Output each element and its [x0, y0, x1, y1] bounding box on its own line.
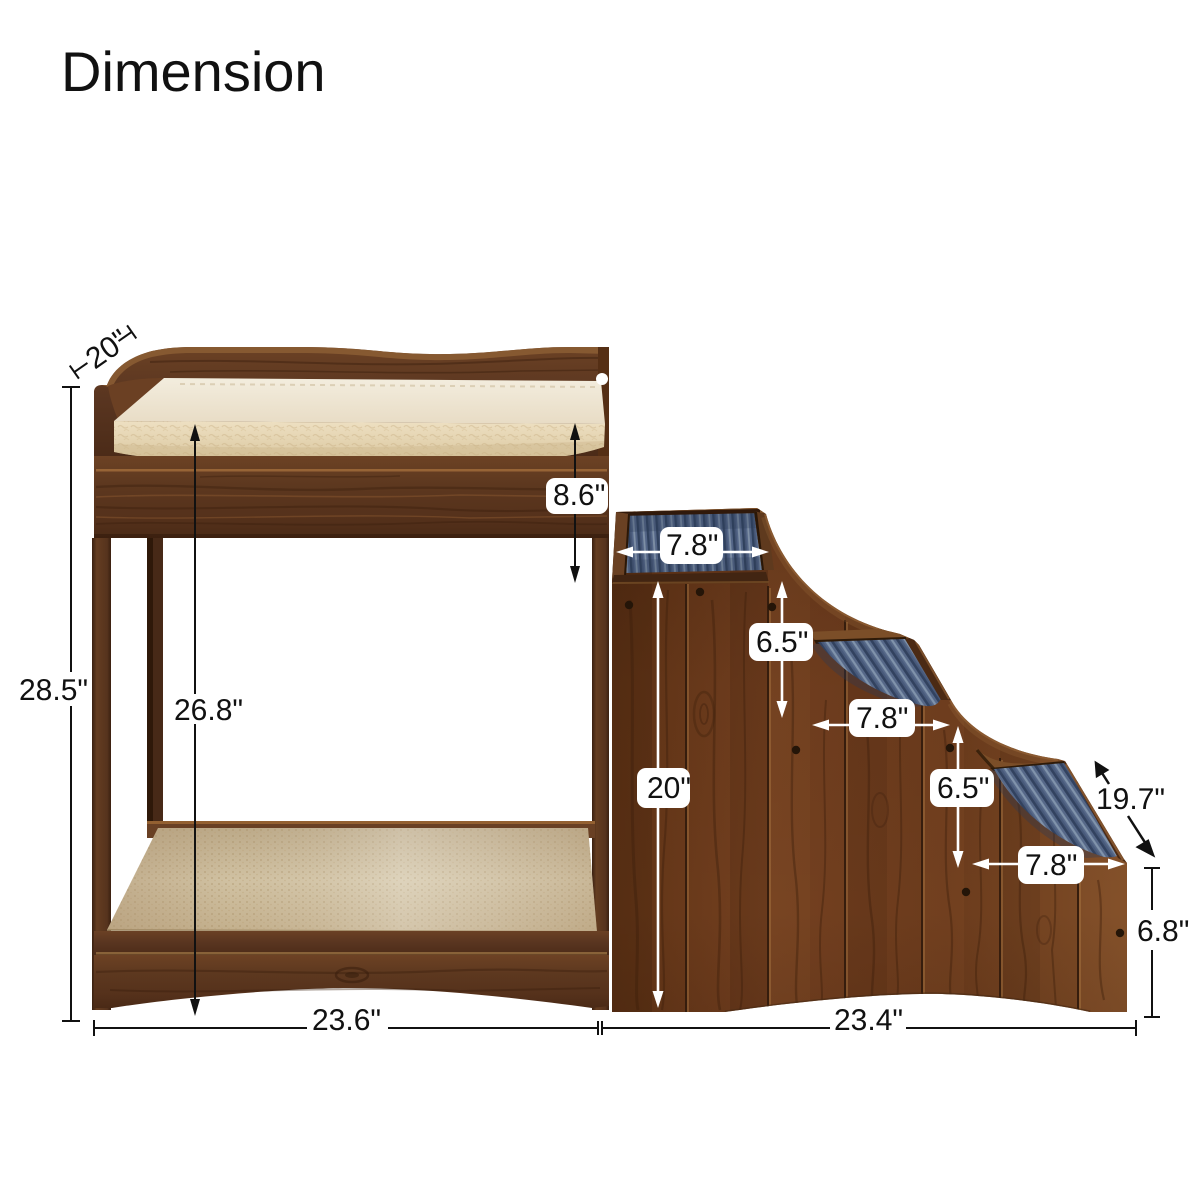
svg-text:7.8": 7.8"	[666, 529, 718, 562]
svg-text:26.8": 26.8"	[174, 694, 243, 727]
svg-text:23.6": 23.6"	[312, 1004, 381, 1037]
svg-text:28.5": 28.5"	[19, 674, 88, 707]
svg-text:Dimension: Dimension	[61, 40, 326, 103]
svg-text:23.4": 23.4"	[834, 1004, 903, 1037]
svg-text:6.5": 6.5"	[756, 626, 808, 659]
svg-text:7.8": 7.8"	[1025, 849, 1077, 882]
svg-text:20": 20"	[647, 772, 691, 805]
svg-text:8.6": 8.6"	[553, 479, 605, 512]
svg-text:7.8": 7.8"	[856, 702, 908, 735]
svg-text:6.5": 6.5"	[937, 772, 989, 805]
svg-text:6.8": 6.8"	[1137, 915, 1189, 948]
svg-text:19.7": 19.7"	[1096, 783, 1165, 816]
